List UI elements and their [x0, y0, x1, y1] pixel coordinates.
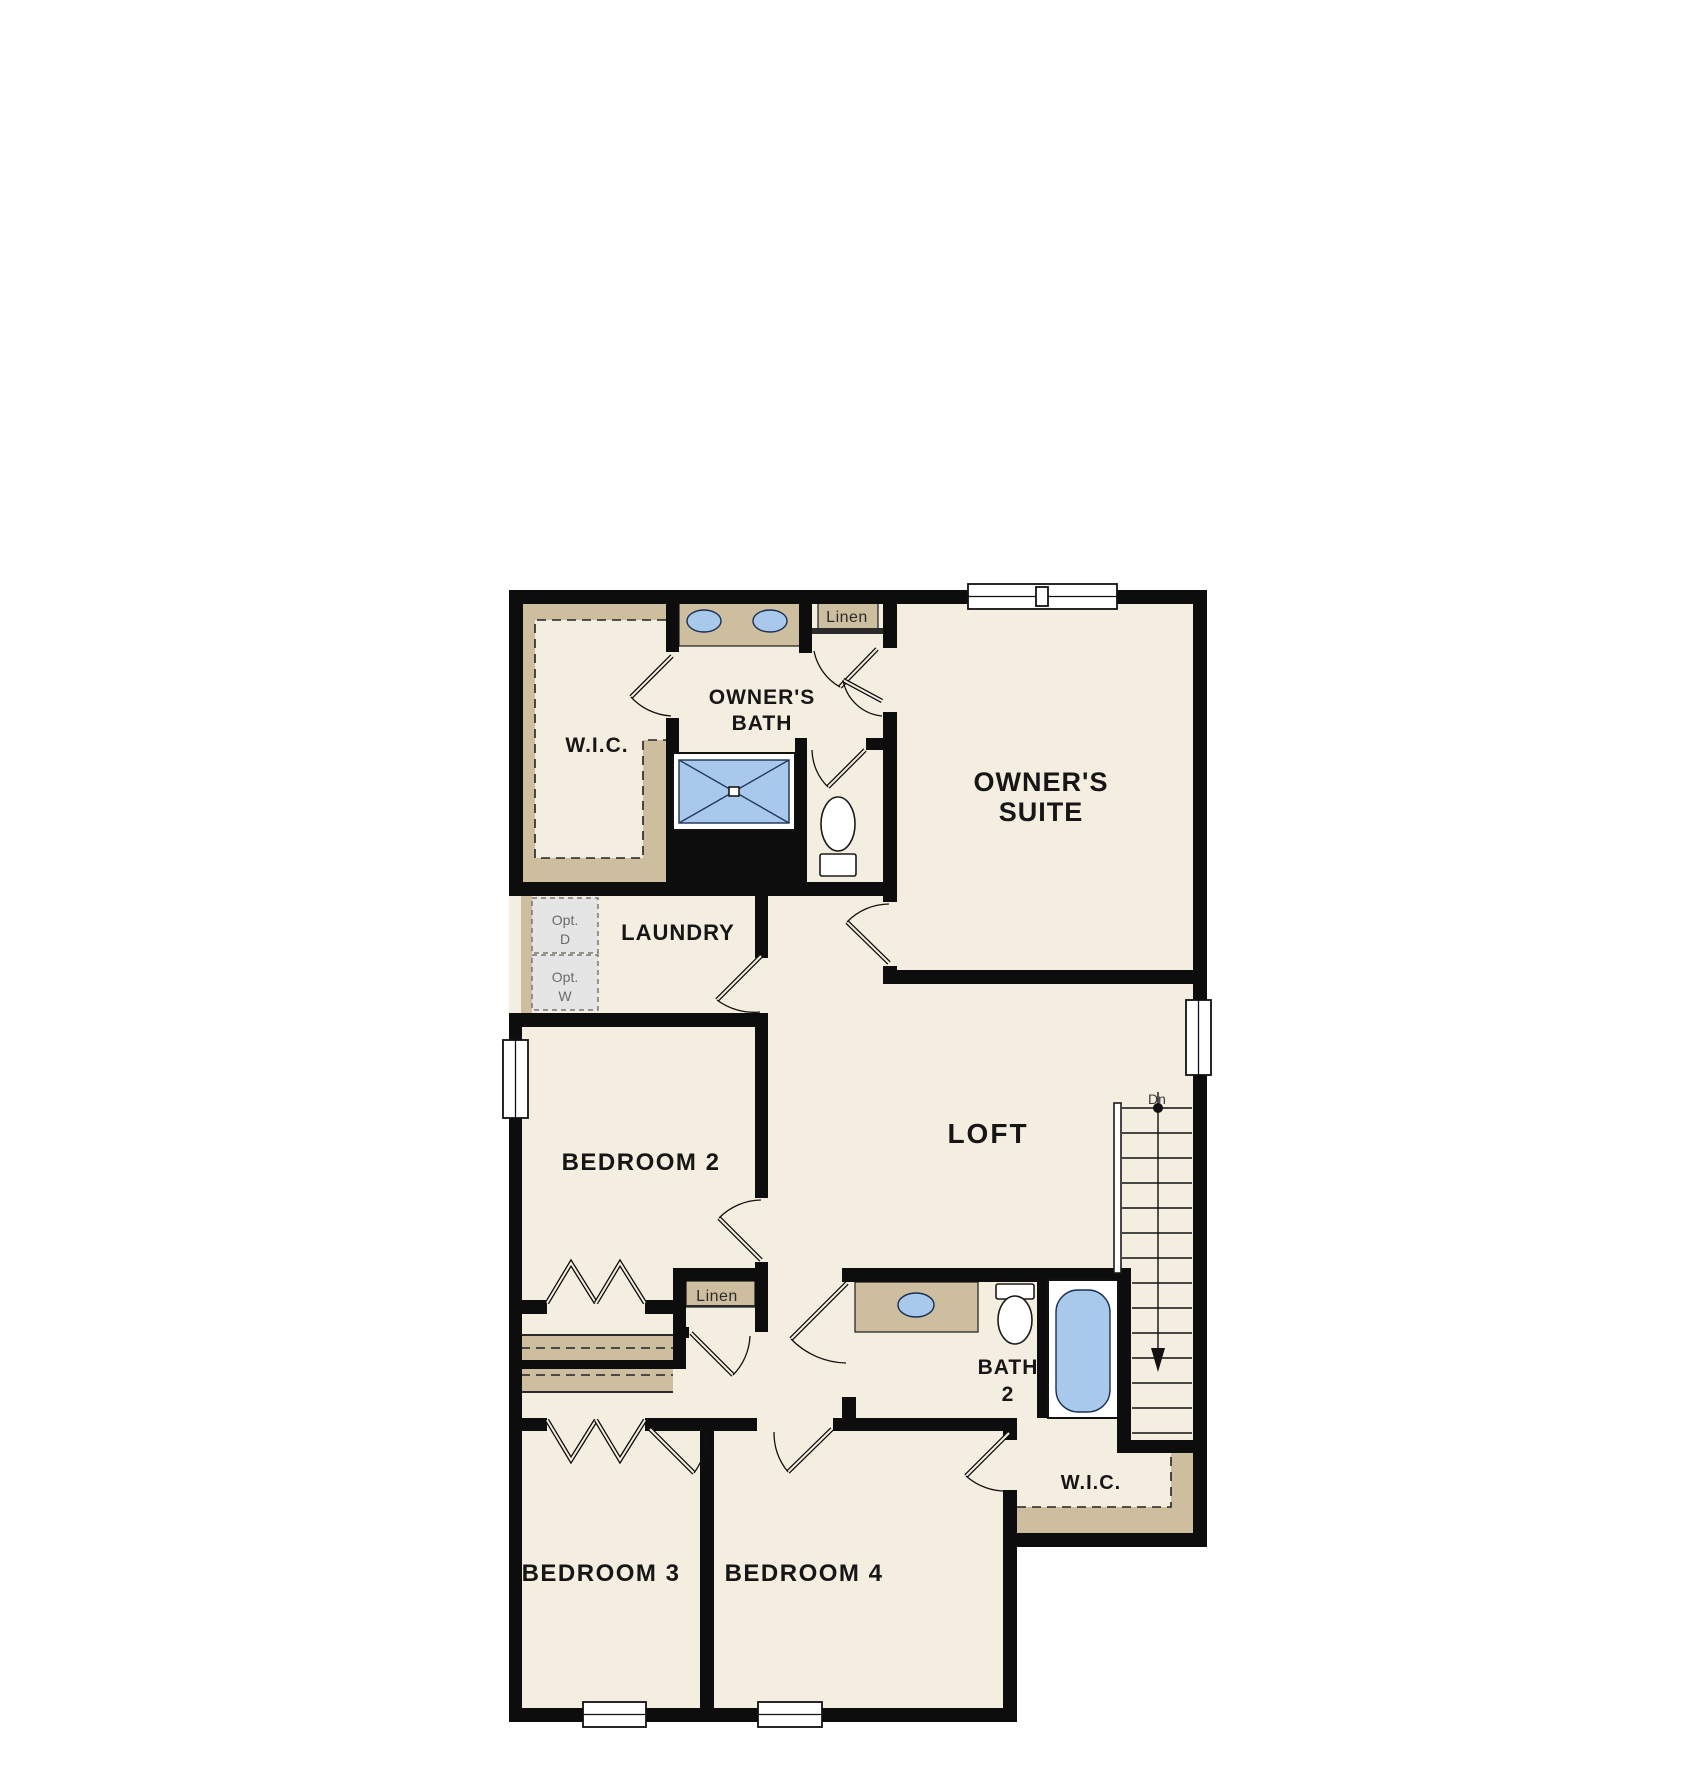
- toilet-icon: [996, 1284, 1034, 1344]
- sink-icon: [753, 610, 787, 632]
- wic-top-label: W.I.C.: [565, 734, 628, 757]
- suite-left-wall: [883, 590, 897, 648]
- linen-top-label: Linen: [826, 609, 868, 626]
- laundry-bottom-wall: [509, 1013, 768, 1027]
- bedroom4-right-wall: [1003, 1490, 1017, 1722]
- bedroom4-top-wall: [714, 1418, 757, 1431]
- sink-icon: [687, 610, 721, 632]
- stairs-down-label: Dn: [1148, 1091, 1166, 1107]
- shelf-edge-line: [521, 1391, 673, 1393]
- shelf-edge-line: [686, 1305, 755, 1307]
- linen-mid-jamb: [673, 1327, 689, 1338]
- loft-label: LOFT: [947, 1118, 1028, 1149]
- wic-top-right-wall: [666, 604, 679, 652]
- linen-top-front-line: [812, 628, 883, 634]
- window-right: [1186, 1000, 1211, 1075]
- stair-handrail: [1114, 1103, 1121, 1273]
- wic-bottom-shelf: [1017, 1507, 1193, 1533]
- laundry-label: LAUNDRY: [621, 920, 735, 945]
- bedroom2-bottom-wall: [509, 1300, 547, 1314]
- opt-washer-label-line2: W: [558, 988, 572, 1004]
- window-bedroom3: [583, 1702, 646, 1727]
- bedroom3-top-wall: [509, 1418, 547, 1431]
- exterior-wall-left-upper: [509, 590, 523, 896]
- window-left: [503, 1040, 528, 1118]
- floor-plan-drawing: W.I.C. OWNER'S BATH Linen OWNER'S SUITE …: [0, 0, 1700, 1776]
- toilet-room-wall: [866, 738, 883, 750]
- bath2-label-line2: 2: [1002, 1383, 1015, 1406]
- window-bedroom4: [758, 1702, 822, 1727]
- linen-mid-left-wall: [673, 1281, 686, 1369]
- bath-block-bottom-wall: [509, 882, 883, 896]
- suite-left-wall: [883, 712, 897, 902]
- window-top: [968, 584, 1117, 609]
- laundry-right-wall: [755, 896, 768, 958]
- owners-bath-label-line2: BATH: [732, 712, 793, 735]
- opt-washer-label-line1: Opt.: [552, 969, 578, 985]
- floor-plan-page: W.I.C. OWNER'S BATH Linen OWNER'S SUITE …: [0, 0, 1700, 1776]
- owners-suite-label-line1: OWNER'S: [974, 767, 1109, 797]
- bedroom2-label: BEDROOM 2: [562, 1149, 721, 1176]
- plumbing-wall-mass: [666, 830, 807, 884]
- opt-dryer-label-line2: D: [560, 931, 570, 947]
- vanity-end-wall: [799, 604, 812, 653]
- bedroom2-bottom-wall: [645, 1300, 686, 1314]
- sink-icon: [898, 1293, 934, 1317]
- bath2-label-line1: BATH: [978, 1356, 1039, 1379]
- wic-bottom-wall: [1003, 1533, 1207, 1547]
- wic-bottom-shelf-right: [1171, 1453, 1193, 1533]
- linen-mid-label: Linen: [696, 1288, 738, 1305]
- closet-divider-wall: [509, 1360, 686, 1369]
- bath2-left-jamb: [842, 1397, 856, 1418]
- owners-suite-label-line2: SUITE: [999, 797, 1084, 827]
- opt-dryer-label-line1: Opt.: [552, 912, 578, 928]
- bedroom4-top-wall: [833, 1418, 1017, 1431]
- owners-bath-label-line1: OWNER'S: [709, 686, 816, 709]
- linen-mid-top-wall: [673, 1268, 768, 1281]
- bathtub-icon: [1048, 1280, 1118, 1418]
- bedroom2-right-wall: [755, 1013, 768, 1198]
- suite-bottom-wall: [883, 970, 1207, 984]
- toilet-icon: [820, 797, 856, 876]
- bedroom3-label: BEDROOM 3: [522, 1560, 681, 1587]
- stairs-left-wall: [1117, 1272, 1131, 1447]
- shelf-edge-line: [521, 1334, 673, 1336]
- laundry-side-strip: [521, 896, 532, 1013]
- wic-bottom-label: W.I.C.: [1061, 1472, 1121, 1494]
- bedroom3-closet-shelf: [521, 1369, 673, 1392]
- shower-icon: [673, 753, 795, 830]
- linen-mid-right-wall: [755, 1281, 768, 1332]
- stairs-bottom-wall: [1117, 1440, 1207, 1453]
- bedroom3-bedroom4-divider: [700, 1418, 714, 1722]
- bedroom4-label: BEDROOM 4: [725, 1560, 884, 1587]
